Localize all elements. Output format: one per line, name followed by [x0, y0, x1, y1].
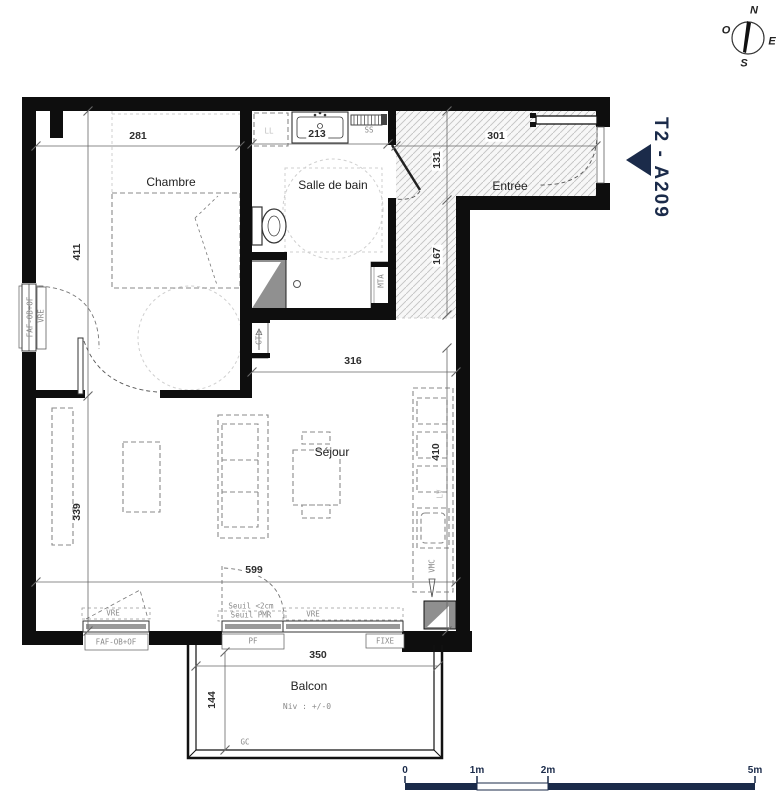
dim-balcon-width: 350 — [309, 650, 327, 661]
label-mta: MTA — [377, 274, 385, 288]
sofa — [218, 415, 268, 538]
dim-entree-depth-lower: 167 — [432, 245, 443, 267]
chair — [302, 432, 330, 444]
compass-east: E — [768, 37, 775, 48]
label-fixe: FIXE — [376, 637, 394, 645]
label-towel-radiator: SS — [364, 126, 373, 134]
dim-chambre-width: 281 — [129, 131, 147, 142]
label-seuil-pmr: Seuil PMR — [231, 611, 272, 619]
scale-label-2m: 2m — [541, 766, 555, 776]
room-label-chambre: Chambre — [146, 176, 195, 188]
dim-sejour-top-width: 316 — [342, 356, 364, 367]
room-label-balcon: Balcon — [291, 680, 328, 692]
unit-arrow — [626, 144, 651, 176]
room-label-salle-de-bain: Salle de bain — [298, 179, 367, 191]
label-vre-bottom-mid: VRE — [306, 610, 320, 618]
unit-title: T2 - A209 — [649, 117, 671, 219]
dim-sejour-right-depth: 410 — [431, 441, 442, 463]
dim-entree-depth-upper: 131 — [432, 149, 443, 171]
label-seuil-height: Seuil <2cm — [228, 602, 273, 610]
compass-rose — [732, 21, 764, 54]
coffee-table — [123, 442, 160, 512]
compass-north: N — [750, 6, 758, 17]
label-gtl: GTL — [255, 331, 263, 345]
dim-entree-width: 301 — [485, 131, 507, 142]
bed — [112, 193, 240, 288]
vmc-duct — [424, 579, 456, 629]
scale-label-1m: 1m — [470, 766, 484, 776]
label-vmc: VMC — [428, 559, 436, 573]
entrance-hatch-zone — [396, 111, 596, 318]
compass-south: S — [740, 59, 747, 70]
label-niveau: Niv : +/-0 — [283, 703, 331, 711]
dim-sejour-width: 599 — [243, 565, 265, 576]
shower — [248, 258, 301, 315]
label-lv: LV — [436, 489, 444, 498]
label-faf-bottom: FAF-OB+OF — [96, 638, 137, 646]
room-label-sejour: Séjour — [315, 446, 350, 458]
towel-radiator — [351, 114, 387, 125]
room-label-entree: Entrée — [492, 180, 527, 192]
scale-label-5m: 5m — [748, 766, 762, 776]
toilet — [252, 207, 286, 245]
floor-plan-canvas: Chambre Salle de bain Entrée Séjour Balc… — [0, 0, 778, 800]
sideboard — [52, 408, 73, 545]
label-washing-machine: LL — [264, 127, 273, 135]
chair — [302, 505, 330, 518]
scale-label-0: 0 — [402, 766, 408, 776]
dim-sejour-left-depth: 339 — [72, 503, 83, 521]
dim-chambre-depth: 411 — [72, 244, 83, 261]
chambre-door — [78, 338, 157, 394]
scale-bar — [405, 776, 755, 790]
label-gc: GC — [240, 738, 249, 746]
label-vre-left: VRE — [37, 309, 45, 323]
compass-west: O — [722, 26, 731, 37]
label-vre-bottom-left: VRE — [106, 609, 120, 617]
dim-balcon-depth: 144 — [207, 691, 218, 709]
label-faf-left: FAF-OB+OF — [26, 297, 34, 338]
wardrobe-swing — [195, 196, 218, 285]
compass-needle — [743, 21, 751, 53]
dim-sdb-width: 213 — [306, 129, 328, 140]
label-pf: PF — [248, 637, 257, 645]
